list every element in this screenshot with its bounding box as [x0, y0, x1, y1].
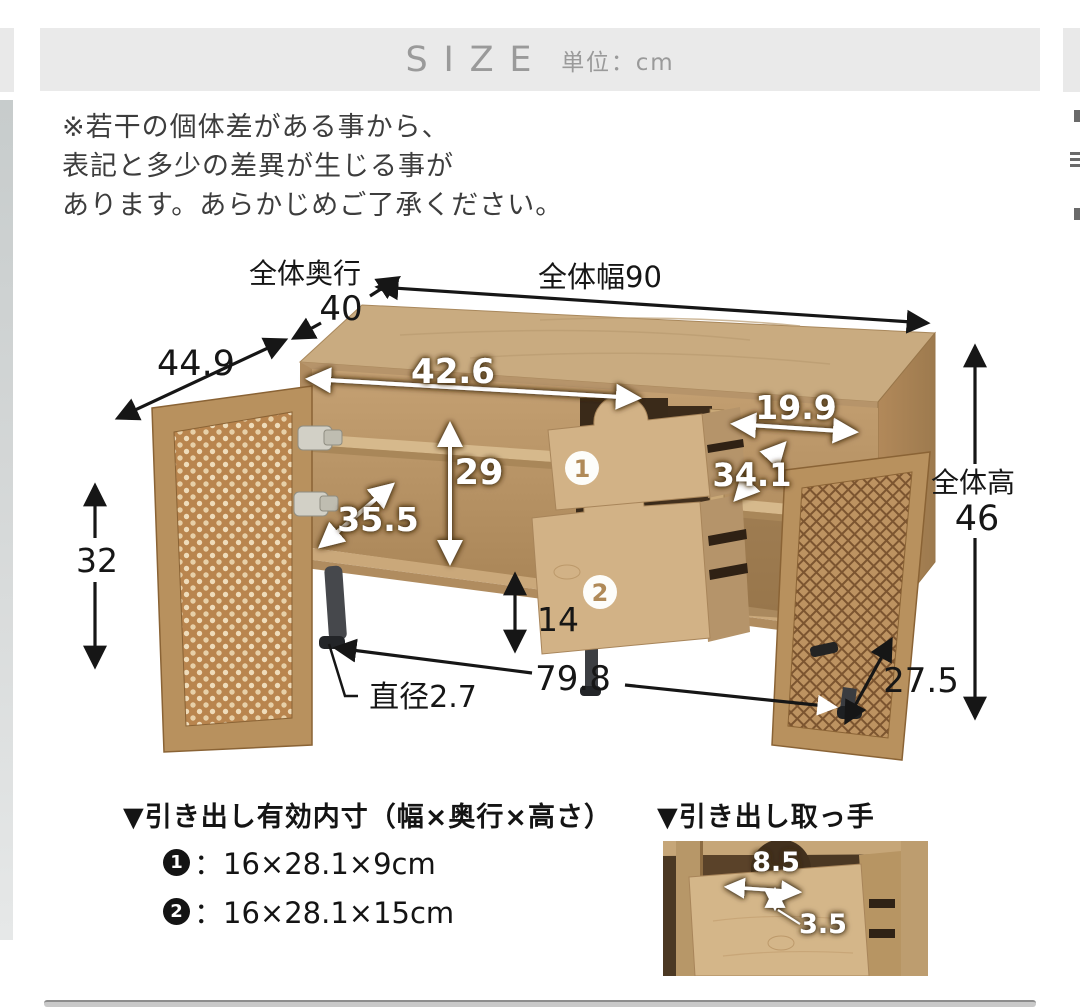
handle-detail-photo: 8.5 3.5	[663, 841, 928, 976]
label-right-width: 19.9	[755, 388, 836, 427]
disclaimer-line-2: 表記と多少の差異が生じる事が	[62, 147, 563, 186]
handle-section-heading: ▼引き出し取っ手	[657, 795, 875, 834]
drawer-specs-section: ▼引き出し有効内寸（幅×奥行×高さ） 1 ：16×28.1×9cm 2 ：16×…	[123, 795, 612, 932]
adjacent-text-fragment	[1070, 158, 1080, 161]
label-leg-diameter: 直径2.7	[369, 680, 477, 715]
label-leg-span-width: 79.8	[535, 659, 611, 699]
drawer-1-dimensions: ：16×28.1×9cm	[194, 841, 436, 883]
adjacent-image-fragment-left-top	[0, 28, 14, 92]
label-overall-width: 全体幅90	[538, 260, 662, 294]
label-floor-clearance: 14	[537, 600, 579, 639]
rattan-cane-panel	[174, 412, 292, 726]
label-door-height: 32	[76, 541, 118, 580]
adjacent-image-fragment-right-top	[1063, 28, 1080, 92]
size-header-bar: SIZE 単位：cm	[40, 28, 1040, 91]
disclaimer-line-3: あります。あらかじめご了承ください。	[62, 186, 563, 225]
label-leg-span-depth: 27.5	[883, 661, 959, 701]
label-overall-height: 全体高	[931, 466, 1015, 499]
label-right-depth: 34.1	[713, 456, 792, 494]
drawer-spec-item-1: 1 ：16×28.1×9cm	[163, 841, 612, 883]
label-left-width: 42.6	[411, 352, 495, 392]
label-inner-depth: 35.5	[337, 500, 418, 539]
size-diagram-page: SIZE 単位：cm ※若干の個体差がある事から、 表記と多少の差異が生じる事が…	[0, 0, 1080, 1007]
carousel-scrollbar[interactable]	[44, 1000, 1036, 1007]
adjacent-text-fragment	[1074, 208, 1080, 220]
label-door-depth: 44.9	[157, 344, 235, 384]
arrow-overall-depth-b	[294, 323, 321, 338]
left-door	[152, 386, 312, 752]
adjacent-text-fragment	[1070, 164, 1080, 167]
disclaimer-text: ※若干の個体差がある事から、 表記と多少の差異が生じる事が あります。あらかじめ…	[62, 108, 563, 225]
inset-right-frame	[901, 841, 928, 976]
arrow-leg-span-a	[336, 648, 532, 673]
drawer-2-dimensions: ：16×28.1×15cm	[194, 890, 454, 932]
drawer-1-badge: 1	[163, 849, 190, 876]
label-overall-depth: 全体奥行	[249, 257, 361, 290]
drawer-spec-item-2: 2 ：16×28.1×15cm	[163, 890, 612, 932]
cabinet-leg-front-left	[319, 565, 347, 649]
label-inner-height: 29	[455, 453, 504, 493]
label-overall-height-value: 46	[955, 499, 1000, 539]
unit-label: 単位：cm	[561, 43, 674, 77]
drawer-specs-heading: ▼引き出し有効内寸（幅×奥行×高さ）	[123, 795, 612, 834]
label-overall-depth-value: 40	[319, 289, 362, 329]
adjacent-text-fragment	[1070, 152, 1080, 155]
drawer-1-number: 1	[574, 455, 591, 483]
label-handle-depth: 3.5	[799, 909, 847, 940]
adjacent-text-fragment	[1074, 110, 1080, 122]
label-handle-width: 8.5	[752, 847, 800, 878]
adjacent-image-fragment-left	[0, 100, 13, 940]
size-title: SIZE	[406, 40, 548, 80]
furniture-dimension-diagram: 2 1	[40, 240, 1040, 795]
disclaimer-line-1: ※若干の個体差がある事から、	[62, 108, 563, 147]
drawer-2-badge: 2	[163, 898, 190, 925]
drawer-2-number: 2	[592, 579, 609, 607]
